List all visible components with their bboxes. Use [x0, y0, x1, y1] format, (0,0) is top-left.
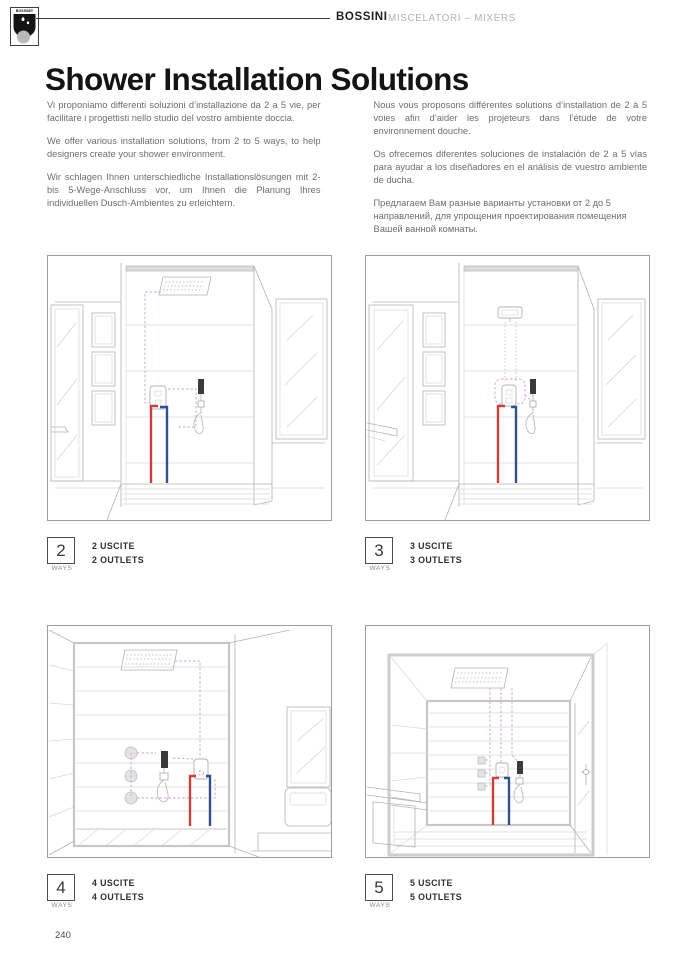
- ways-number-box: 2: [47, 537, 75, 564]
- caption-uscite: 2 USCITE: [92, 539, 144, 553]
- intro-column-left: Vi proponiamo differenti soluzioni d’ins…: [47, 99, 321, 246]
- wall-tiles: [429, 713, 568, 811]
- shower-tray: [107, 484, 272, 520]
- right-wall: [229, 630, 330, 857]
- figure-3-ways: 3 WAYS 3 USCITE 3 OUTLETS: [365, 255, 650, 572]
- brand-name: BOSSINI: [336, 11, 388, 23]
- svg-text:BOSSINI®: BOSSINI®: [16, 9, 34, 13]
- caption-outlets: 2 OUTLETS: [92, 553, 144, 567]
- cold-water-pipe: [504, 778, 509, 825]
- figure-caption: 5 WAYS 5 USCITE 5 OUTLETS: [365, 874, 650, 909]
- hot-water-pipe: [151, 406, 158, 483]
- wall-niches: [423, 313, 445, 425]
- header-rule: [36, 18, 330, 19]
- header-category: MISCELATORI – MIXERS: [388, 13, 516, 24]
- route-hand-shower: [173, 758, 193, 759]
- mirror-panel: [51, 305, 83, 481]
- ways-label: WAYS: [47, 902, 77, 909]
- route-right: [512, 688, 518, 762]
- caption-uscite: 4 USCITE: [92, 876, 144, 890]
- caption-outlets: 3 OUTLETS: [410, 553, 462, 567]
- bathtub: [251, 788, 331, 851]
- door-handle-icon: [581, 764, 591, 785]
- caption-outlets: 4 OUTLETS: [92, 890, 144, 904]
- hot-water-pipe: [493, 778, 499, 825]
- ways-label: WAYS: [365, 902, 395, 909]
- hand-shower-icon: [157, 751, 168, 802]
- route-hand-shower: [525, 395, 532, 401]
- intro-paragraph-english: We offer various installation solutions,…: [47, 135, 321, 161]
- intro-paragraph-italian: Vi proponiamo differenti soluzioni d’ins…: [47, 99, 321, 125]
- vanity: [367, 787, 420, 847]
- bossini-logo-icon: BOSSINI®: [10, 7, 39, 46]
- intro-paragraph-spanish: Os ofrecemos diferentes soluciones de in…: [374, 148, 648, 187]
- bench-step: [367, 423, 397, 441]
- intro-paragraph-german: Wir schlagen Ihnen unterschiedliche Inst…: [47, 171, 321, 210]
- cold-water-pipe: [206, 776, 210, 826]
- left-wall: [391, 725, 427, 810]
- intro-column-right: Nous vous proposons différentes solution…: [374, 99, 648, 246]
- mixer-icon: [502, 385, 516, 406]
- route-hand-shower: [168, 389, 196, 427]
- cold-water-pipe: [511, 407, 516, 483]
- rain-shower-head-icon: [451, 668, 508, 688]
- wall-tiles: [76, 667, 227, 829]
- ways-label: WAYS: [47, 565, 77, 572]
- intro-paragraph-russian: Предлагаем Вам разные варианты установки…: [374, 197, 648, 236]
- hot-water-pipe: [190, 776, 196, 826]
- glass-door: [575, 703, 589, 853]
- shower-diagram-4-ways-icon: [47, 625, 332, 858]
- shower-diagram-2-ways-icon: [47, 255, 332, 521]
- catalog-page: BOSSINI® BOSSINI MISCELATORI – MIXERS Sh…: [0, 0, 677, 958]
- shower-enclosure: [445, 263, 594, 520]
- mixer-icon: [496, 763, 508, 777]
- ways-number-box: 3: [365, 537, 393, 564]
- caption-uscite: 3 USCITE: [410, 539, 462, 553]
- intro-paragraph-french: Nous vous proposons différentes solution…: [374, 99, 648, 138]
- hand-shower-icon: [514, 761, 523, 803]
- mixer-icon: [194, 759, 208, 779]
- left-wall: [49, 630, 74, 855]
- figure-4-ways: 4 WAYS 4 USCITE 4 OUTLETS: [47, 625, 332, 909]
- shower-diagram-5-ways-icon: [365, 625, 650, 858]
- mirror-panel: [369, 305, 413, 481]
- hand-shower-icon: [526, 379, 536, 434]
- rain-shower-head-icon: [159, 277, 211, 295]
- route-loop: [137, 779, 215, 798]
- ways-label: WAYS: [365, 565, 395, 572]
- shower-back-wall: [74, 643, 229, 846]
- ways-number-box: 5: [365, 874, 393, 901]
- floor-hatch: [79, 830, 209, 845]
- intro-text: Vi proponiamo differenti soluzioni d’ins…: [47, 99, 647, 246]
- hot-water-pipe: [498, 406, 505, 483]
- right-wall: [593, 643, 607, 855]
- figure-caption: 4 WAYS 4 USCITE 4 OUTLETS: [47, 874, 332, 909]
- shower-diagram-3-ways-icon: [365, 255, 650, 521]
- sink-ledge: [51, 427, 68, 432]
- figure-5-ways: 5 WAYS 5 USCITE 5 OUTLETS: [365, 625, 650, 909]
- figure-caption: 3 WAYS 3 USCITE 3 OUTLETS: [365, 537, 650, 572]
- wall-shower-head-icon: [498, 307, 522, 322]
- route-ceiling-head: [175, 661, 200, 758]
- shower-tray: [445, 484, 594, 520]
- cold-water-pipe: [160, 407, 167, 483]
- caption-outlets: 5 OUTLETS: [410, 890, 462, 904]
- hand-shower-icon: [194, 379, 204, 434]
- floor-lines: [395, 832, 587, 846]
- ways-number-box: 4: [47, 874, 75, 901]
- glass-panel: [598, 299, 645, 439]
- body-jets: [478, 757, 490, 790]
- glass-panel: [276, 299, 327, 439]
- wall-niches: [92, 313, 115, 425]
- figure-2-ways: 2 WAYS 2 USCITE 2 OUTLETS: [47, 255, 332, 572]
- shower-enclosure: [107, 263, 272, 520]
- figure-caption: 2 WAYS 2 USCITE 2 OUTLETS: [47, 537, 332, 572]
- page-number: 240: [55, 930, 71, 941]
- page-title: Shower Installation Solutions: [45, 61, 469, 98]
- caption-uscite: 5 USCITE: [410, 876, 462, 890]
